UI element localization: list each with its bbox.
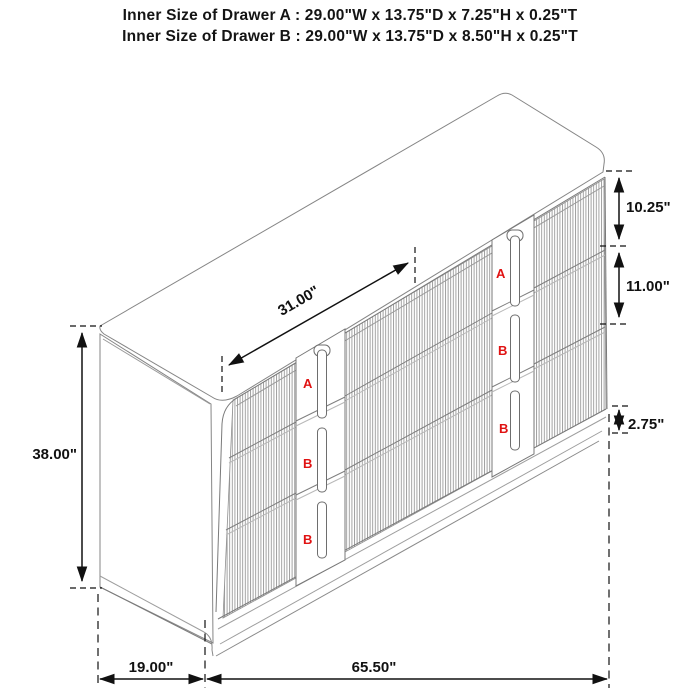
fluted-door-right [534, 179, 606, 448]
furniture-dimension-diagram-page: Inner Size of Drawer A : 29.00"W x 13.75… [0, 0, 700, 700]
height-dim-label: 38.00" [32, 446, 77, 463]
drawer-b-marker-left-bottom: B [303, 532, 312, 547]
drawer-b-front-dim-label: 11.00" [626, 278, 670, 295]
drawer-a-marker-right: A [496, 266, 506, 281]
sideboard-cabinet [100, 93, 607, 656]
diagram-canvas: A B B A B B 38.00" 31.00" 10.25" [0, 0, 700, 700]
drawer-a-front-dim-label: 10.25" [626, 199, 671, 216]
drawer-a-marker-left: A [303, 376, 313, 391]
base-height-dim-label: 2.75" [628, 416, 664, 433]
width-dim-label: 65.50" [352, 659, 397, 676]
depth-dim-label: 19.00" [129, 659, 174, 676]
drawer-b-marker-right-bottom: B [499, 421, 508, 436]
drawer-b-marker-right-middle: B [498, 343, 507, 358]
drawer-b-marker-left-middle: B [303, 456, 312, 471]
fluted-door-left [223, 363, 296, 618]
